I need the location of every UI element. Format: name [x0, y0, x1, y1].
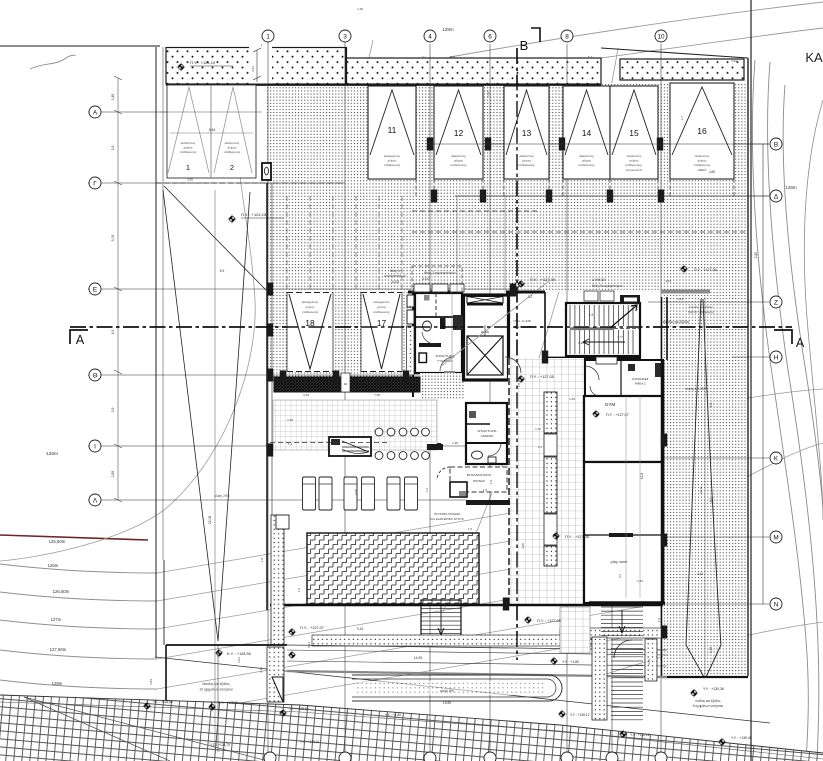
- svg-text:3,13: 3,13: [259, 667, 263, 673]
- svg-text:ακάλυπτος: ακάλυπτος: [225, 141, 240, 145]
- svg-text:2: 2: [230, 163, 234, 172]
- svg-text:1,35: 1,35: [578, 341, 584, 345]
- svg-text:Λ: Λ: [93, 497, 98, 504]
- svg-text:10 οχημάτων υπογείου: 10 οχημάτων υπογείου: [199, 688, 233, 692]
- svg-text:Π.Υ. : +127,09: Π.Υ. : +127,09: [530, 277, 556, 282]
- svg-text:13: 13: [522, 128, 532, 138]
- svg-text:Υ.Υ. : +130,36: Υ.Υ. : +130,36: [703, 687, 724, 691]
- svg-text:3,1: 3,1: [422, 55, 427, 59]
- svg-text:- Δ101: - Δ101: [390, 280, 400, 284]
- svg-text:16: 16: [697, 126, 707, 136]
- svg-text:Υ.Σ. : +128,80: Υ.Σ. : +128,80: [153, 700, 173, 704]
- svg-text:GYM: GYM: [605, 402, 616, 407]
- svg-text:1,5: 1,5: [657, 618, 661, 623]
- svg-text:Δ6: Δ6: [344, 382, 348, 386]
- svg-text:Π.Υ. : +127,07: Π.Υ. : +127,07: [606, 413, 629, 417]
- svg-text:1,32: 1,32: [486, 91, 490, 97]
- svg-text:5,2: 5,2: [588, 55, 593, 59]
- svg-text:καλυμμένος: καλυμμένος: [373, 300, 390, 304]
- svg-text:στάθμευσης,: στάθμευσης,: [625, 163, 643, 167]
- svg-text:ΚΑ: ΚΑ: [805, 50, 823, 65]
- svg-text:5,5: 5,5: [220, 269, 225, 273]
- svg-text:ΑΜΕΑ: ΑΜΕΑ: [698, 168, 708, 172]
- svg-text:14: 14: [582, 128, 592, 138]
- svg-text:Z: Z: [774, 299, 778, 306]
- svg-text:M: M: [773, 534, 778, 541]
- svg-text:Κ.Υ. : +128,55: Κ.Υ. : +128,55: [227, 652, 251, 656]
- svg-text:Δ102: Δ102: [422, 277, 430, 281]
- svg-text:H: H: [774, 354, 779, 361]
- svg-text:Υ.Υ. : +1,80: Υ.Υ. : +1,80: [562, 660, 579, 664]
- svg-text:1,45: 1,45: [287, 418, 293, 422]
- svg-text:Υ.Υ. : +130,12: Υ.Υ. : +130,12: [630, 733, 650, 737]
- svg-text:22,08: 22,08: [208, 516, 212, 525]
- svg-text:Π.Υ. : +127,05: Π.Υ. : +127,05: [530, 375, 554, 379]
- svg-text:15: 15: [629, 128, 639, 138]
- svg-text:Π.Υ. : +127,06: Π.Υ. : +127,06: [694, 268, 717, 272]
- svg-text:4,08: 4,08: [354, 489, 358, 495]
- svg-text:Υ.Υ. : +1,80: Υ.Υ. : +1,80: [385, 713, 401, 717]
- svg-text:κλίση 6%: κλίση 6%: [440, 689, 454, 693]
- svg-text:12: 12: [454, 128, 464, 138]
- svg-text:19,89: 19,89: [443, 701, 451, 705]
- svg-text:127m: 127m: [51, 617, 62, 622]
- svg-text:2,80: 2,80: [754, 252, 758, 259]
- svg-text:4: 4: [428, 33, 432, 40]
- svg-text:6,06: 6,06: [647, 659, 651, 665]
- svg-text:6: 6: [488, 33, 492, 40]
- svg-text:ακάλυπτος: ακάλυπτος: [579, 154, 594, 158]
- svg-text:1: 1: [266, 33, 270, 40]
- svg-text:χώρος: χώρος: [377, 305, 386, 309]
- svg-text:N: N: [774, 601, 779, 608]
- svg-text:ΑΝΔΡΩΝ: ΑΝΔΡΩΝ: [481, 434, 494, 438]
- svg-text:3,05: 3,05: [187, 178, 193, 182]
- svg-text:1: 1: [186, 163, 190, 172]
- svg-text:Υ.Υ. : +128,86: Υ.Υ. : +128,86: [289, 707, 309, 711]
- svg-text:A: A: [93, 109, 98, 116]
- svg-text:B: B: [774, 141, 778, 148]
- svg-text:4,93: 4,93: [731, 59, 737, 63]
- svg-text:2,4: 2,4: [589, 313, 594, 317]
- svg-text:1,4: 1,4: [288, 442, 293, 446]
- svg-text:ΧΩΡΟΥ στάθμευσης: ΧΩΡΟΥ στάθμευσης: [688, 310, 715, 314]
- svg-text:Π.Υ. : +124,15: Π.Υ. : +124,15: [241, 212, 267, 217]
- svg-text:128m: 128m: [52, 681, 63, 686]
- svg-text:Δ:09#183: Δ:09#183: [592, 278, 606, 282]
- svg-text:Υ.Σ. : +128,70: Υ.Σ. : +128,70: [210, 743, 230, 747]
- svg-text:Υ.Υ. : +130,12: Υ.Υ. : +130,12: [570, 713, 590, 717]
- svg-text:1,6: 1,6: [468, 527, 473, 531]
- svg-text:στάθμευσης: στάθμευσης: [373, 310, 390, 314]
- svg-text:7,35: 7,35: [374, 393, 380, 397]
- svg-text:128m: 128m: [785, 185, 797, 190]
- svg-text:κομπρεσόρων: κομπρεσόρων: [385, 274, 406, 278]
- svg-text:στάθμευσης: στάθμευσης: [578, 163, 595, 167]
- svg-text:ακάλυπτος: ακάλυπτος: [181, 141, 196, 145]
- svg-text:στάθμευσης: στάθμευσης: [302, 310, 319, 314]
- svg-text:play room: play room: [611, 560, 628, 564]
- svg-text:ακάλυπτος: ακάλυπτος: [695, 154, 710, 158]
- svg-text:καλυμμένος: καλυμμένος: [302, 300, 319, 304]
- svg-text:στάθμευσης: στάθμευσης: [384, 163, 401, 167]
- svg-text:στάθμευσης: στάθμευσης: [518, 163, 535, 167]
- svg-text:ΠΛΥΣΙΜΟ ΠΟΔΙΩΝ: ΠΛΥΣΙΜΟ ΠΟΔΙΩΝ: [434, 512, 460, 516]
- svg-text:Π.Υ. : +128,86: Π.Υ. : +128,86: [218, 701, 238, 705]
- svg-text:K: K: [774, 455, 779, 462]
- svg-text:χώρος: χώρος: [630, 159, 639, 163]
- svg-text:στάθμευσης: στάθμευσης: [694, 163, 711, 167]
- svg-text:3,9: 3,9: [111, 408, 115, 413]
- svg-text:χώρος: χώρος: [184, 146, 193, 150]
- svg-text:3,9: 3,9: [111, 146, 115, 151]
- svg-text:5,3: 5,3: [709, 403, 713, 408]
- svg-text:4,85: 4,85: [709, 170, 715, 174]
- svg-text:ΚΑΙ ΕΞΩΤΕΡΙΚΟ ΝΤΟΥΣ: ΚΑΙ ΕΞΩΤΕΡΙΚΟ ΝΤΟΥΣ: [430, 517, 464, 521]
- svg-text:11: 11: [388, 125, 397, 135]
- svg-text:χώρος: χώρος: [698, 159, 707, 163]
- svg-text:1,35: 1,35: [452, 441, 458, 445]
- svg-text:1,8: 1,8: [260, 558, 264, 563]
- svg-text:10: 10: [657, 33, 665, 40]
- svg-text:ΑΠΟΘΗΚΕΣ: ΑΠΟΘΗΚΕΣ: [632, 377, 649, 381]
- svg-text:126,50m: 126,50m: [53, 589, 70, 594]
- svg-text:5,46: 5,46: [209, 128, 216, 132]
- svg-text:ΜΗΧΑΝΟΣΤΑΣΙΟ: ΜΗΧΑΝΟΣΤΑΣΙΟ: [467, 473, 492, 477]
- svg-text:Π.Υ. : +124,10: Π.Υ. : +124,10: [190, 60, 216, 65]
- svg-text:ακάλυπτος: ακάλυπτος: [627, 154, 642, 158]
- svg-text:χώρος: χώρος: [582, 159, 591, 163]
- svg-text:2,84: 2,84: [149, 679, 153, 685]
- svg-text:126m: 126m: [48, 563, 59, 568]
- svg-text:4,44: 4,44: [697, 572, 703, 576]
- svg-text:1,8: 1,8: [297, 588, 301, 593]
- svg-text:A: A: [76, 333, 85, 347]
- svg-text:κλίση 20%: κλίση 20%: [215, 494, 230, 498]
- svg-text:ακάλυπτος: ακάλυπτος: [451, 154, 466, 158]
- svg-text:στάθμευσης: στάθμευσης: [180, 150, 197, 154]
- svg-text:1,9: 1,9: [483, 488, 487, 492]
- svg-text:3,15: 3,15: [637, 579, 643, 583]
- svg-text:Υ.Υ. : +130,45: Υ.Υ. : +130,45: [731, 736, 752, 740]
- svg-text:Γ: Γ: [93, 180, 97, 187]
- svg-text:9,15: 9,15: [357, 627, 363, 631]
- svg-text:A: A: [796, 336, 805, 350]
- svg-text:43,9: 43,9: [449, 55, 455, 59]
- svg-text:Δ: Δ: [774, 193, 779, 200]
- svg-text:4,5: 4,5: [111, 330, 115, 335]
- svg-text:14,55: 14,55: [414, 656, 423, 660]
- svg-text:επισκεπτών: επισκεπτών: [626, 168, 643, 172]
- svg-text:χώρος: χώρος: [228, 146, 237, 150]
- svg-text:Π.Υ. : +127,05: Π.Υ. : +127,05: [565, 535, 589, 539]
- svg-text:4,7: 4,7: [680, 116, 684, 121]
- svg-text:3,25: 3,25: [709, 647, 713, 654]
- svg-text:2,04: 2,04: [237, 657, 241, 663]
- svg-text:στάθμευσης: στάθμευσης: [224, 150, 241, 154]
- svg-text:E: E: [93, 286, 97, 293]
- svg-text:ΠΙΣΙΝΑΣ: ΠΙΣΙΝΑΣ: [473, 479, 485, 483]
- svg-text:ισόδος και έξοδος: ισόδος και έξοδος: [695, 699, 720, 703]
- svg-text:3,3: 3,3: [618, 574, 622, 579]
- svg-text:125m: 125m: [46, 451, 58, 457]
- svg-text:8 οχημάτων υπόγειου: 8 οχημάτων υπόγειου: [693, 704, 724, 708]
- svg-text:125,50m: 125,50m: [49, 539, 66, 544]
- svg-text:1,77: 1,77: [617, 335, 623, 339]
- svg-text:κλίση 16,35%: κλίση 16,35%: [685, 387, 708, 391]
- svg-text:Πλατ. κλ.348: Πλατ. κλ.348: [513, 319, 530, 323]
- svg-text:χώρος: χώρος: [388, 159, 397, 163]
- svg-text:3,53: 3,53: [251, 66, 255, 72]
- svg-text:2,85: 2,85: [111, 471, 115, 478]
- svg-text:12,8: 12,8: [640, 473, 644, 479]
- svg-text:ακάλυπτος: ακάλυπτος: [519, 154, 534, 158]
- svg-text:ΓΥΝΑΙΚΩΝ: ΓΥΝΑΙΚΩΝ: [437, 359, 452, 363]
- svg-text:θέση 3: θέση 3: [390, 269, 400, 273]
- svg-text:1,28: 1,28: [357, 7, 363, 11]
- svg-text:3,45: 3,45: [303, 393, 309, 397]
- svg-text:Υ.Υ. : +129,31: Υ.Υ. : +129,31: [300, 740, 320, 744]
- svg-text:1,45: 1,45: [535, 427, 541, 431]
- svg-text:1,4: 1,4: [538, 445, 543, 449]
- svg-text:1,8: 1,8: [489, 480, 493, 484]
- svg-text:ΑΜΕΑ 2: ΑΜΕΑ 2: [635, 382, 646, 386]
- svg-text:4,44: 4,44: [665, 279, 671, 283]
- svg-text:B: B: [520, 38, 529, 53]
- svg-text:127,50m: 127,50m: [50, 647, 67, 652]
- svg-text:χώρος: χώρος: [306, 305, 315, 309]
- svg-text:20,21: 20,21: [699, 486, 703, 494]
- svg-text:Π.Υ. : +127,05: Π.Υ. : +127,05: [537, 619, 561, 623]
- svg-text:4,44: 4,44: [677, 297, 683, 301]
- svg-text:είσοδος και έξοδος: είσοδος και έξοδος: [689, 305, 714, 309]
- svg-text:Θ: Θ: [93, 372, 98, 379]
- svg-text:3,2: 3,2: [528, 295, 533, 299]
- svg-text:3,05: 3,05: [521, 543, 525, 549]
- svg-text:χώρος: χώρος: [522, 159, 531, 163]
- svg-text:128m: 128m: [442, 27, 454, 32]
- svg-text:θέση 3 κομπρεσόρων: θέση 3 κομπρεσόρων: [424, 271, 456, 275]
- svg-text:I: I: [94, 443, 96, 450]
- svg-text:χώρος: χώρος: [454, 159, 463, 163]
- svg-text:5,13: 5,13: [307, 642, 311, 648]
- svg-text:θέση 5 κομπρεσόρων: θέση 5 κομπρεσόρων: [592, 284, 623, 288]
- svg-text:3: 3: [343, 33, 347, 40]
- svg-text:καλυμμένος: καλυμμένος: [384, 154, 401, 158]
- svg-text:Π.Υ. : +127,07: Π.Υ. : +127,07: [300, 626, 324, 630]
- svg-text:5,05: 5,05: [111, 235, 115, 242]
- svg-text:ΑΠΟΔΥΤΗΡΙΑ: ΑΠΟΔΥΤΗΡΙΑ: [477, 429, 496, 433]
- svg-text:8: 8: [565, 33, 569, 40]
- svg-text:είσοδος και έξοδος: είσοδος και έξοδος: [202, 682, 230, 686]
- svg-text:1,85: 1,85: [111, 94, 115, 101]
- svg-text:1,45: 1,45: [569, 397, 575, 401]
- svg-text:4,4: 4,4: [425, 488, 429, 493]
- svg-text:στάθμευσης: στάθμευσης: [450, 163, 467, 167]
